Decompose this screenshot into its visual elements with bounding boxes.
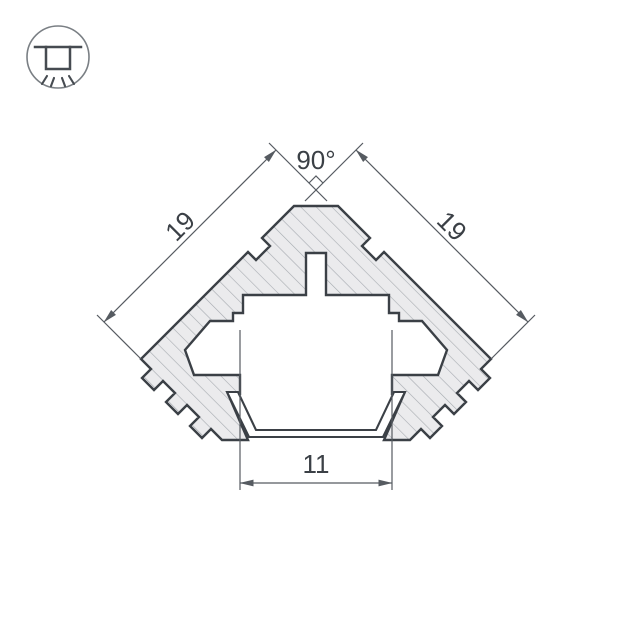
recessed-ceiling-light-icon [27,26,89,88]
extension-line-right [491,315,535,359]
diffuser-cover [227,392,405,437]
side-right-label: 19 [431,205,473,247]
profile-body-hatched [141,206,491,440]
technical-drawing: 90° 19 19 11 [0,0,630,630]
drawing-canvas: 90° 19 19 11 [0,0,630,630]
extension-line-left [97,315,141,359]
right-angle-square [309,176,323,183]
profile-cross-section [141,206,491,440]
side-left-label: 19 [159,205,201,247]
bottom-width-label: 11 [303,449,330,479]
angle-label: 90° [296,145,335,175]
